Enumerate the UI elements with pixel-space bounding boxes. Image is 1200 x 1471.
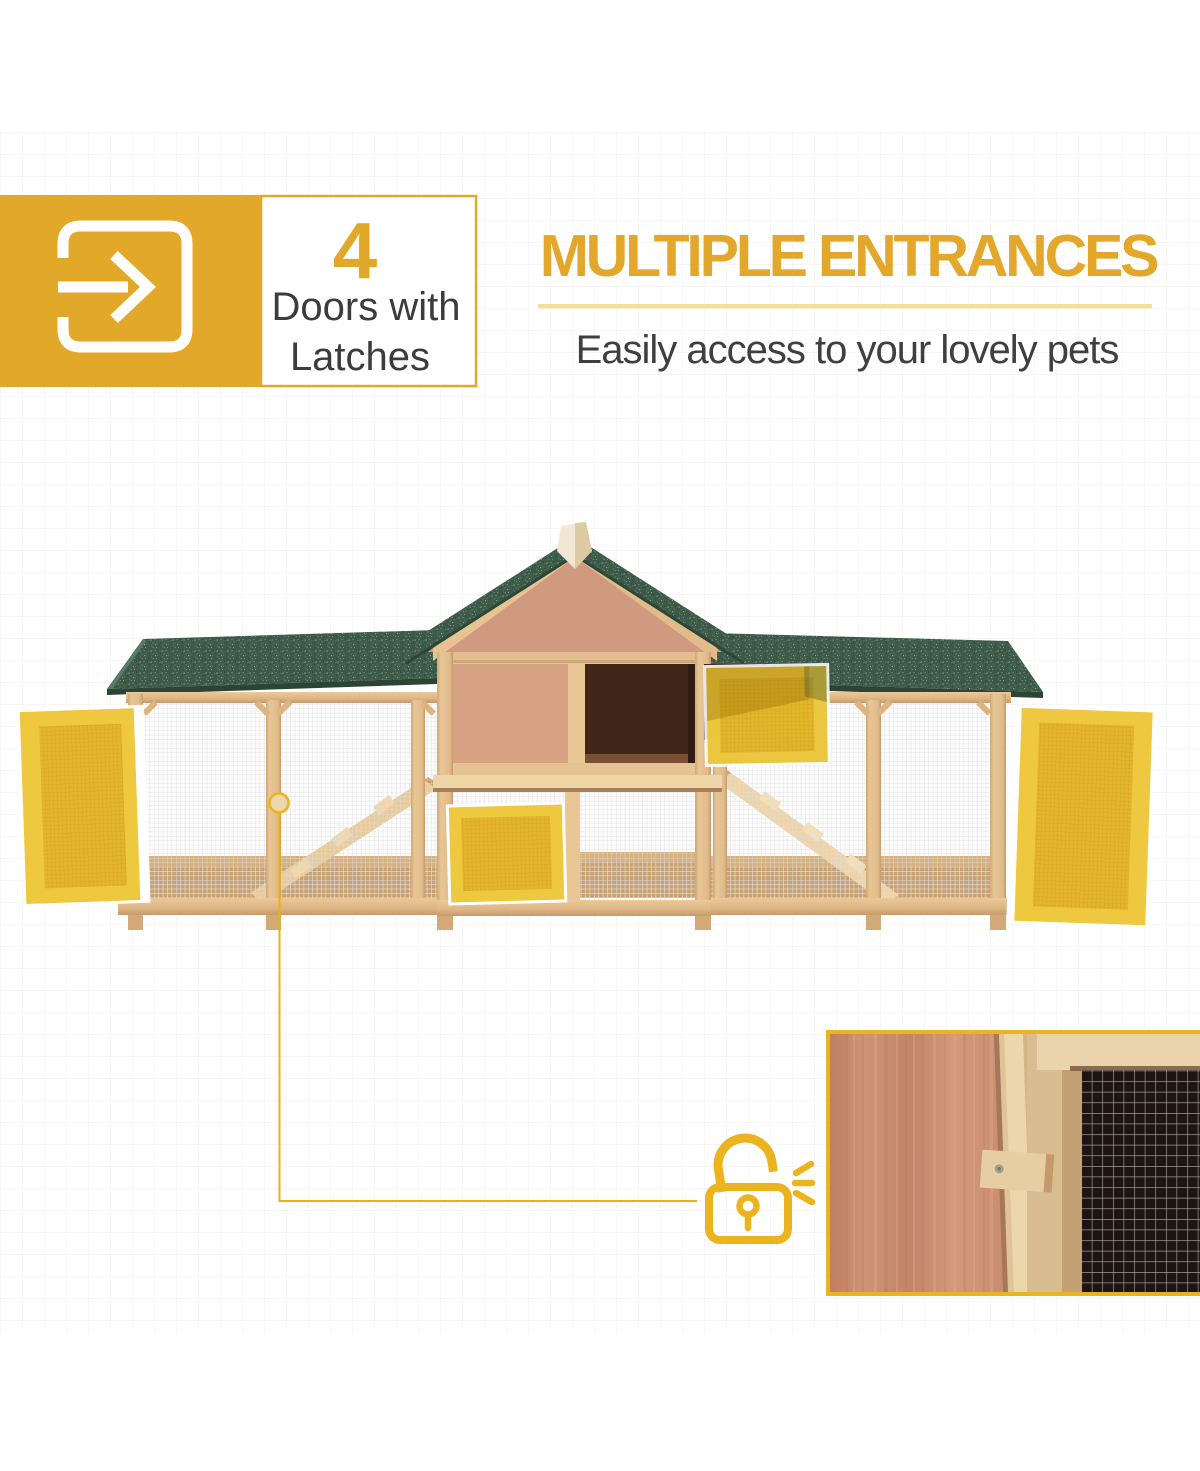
svg-text:Easily access to your lovely p: Easily access to your lovely pets [576,328,1119,372]
svg-text:4: 4 [333,206,378,295]
svg-text:MULTIPLE ENTRANCES: MULTIPLE ENTRANCES [540,223,1158,289]
svg-text:Doors with: Doors with [272,285,461,329]
svg-text:Latches: Latches [290,335,430,379]
